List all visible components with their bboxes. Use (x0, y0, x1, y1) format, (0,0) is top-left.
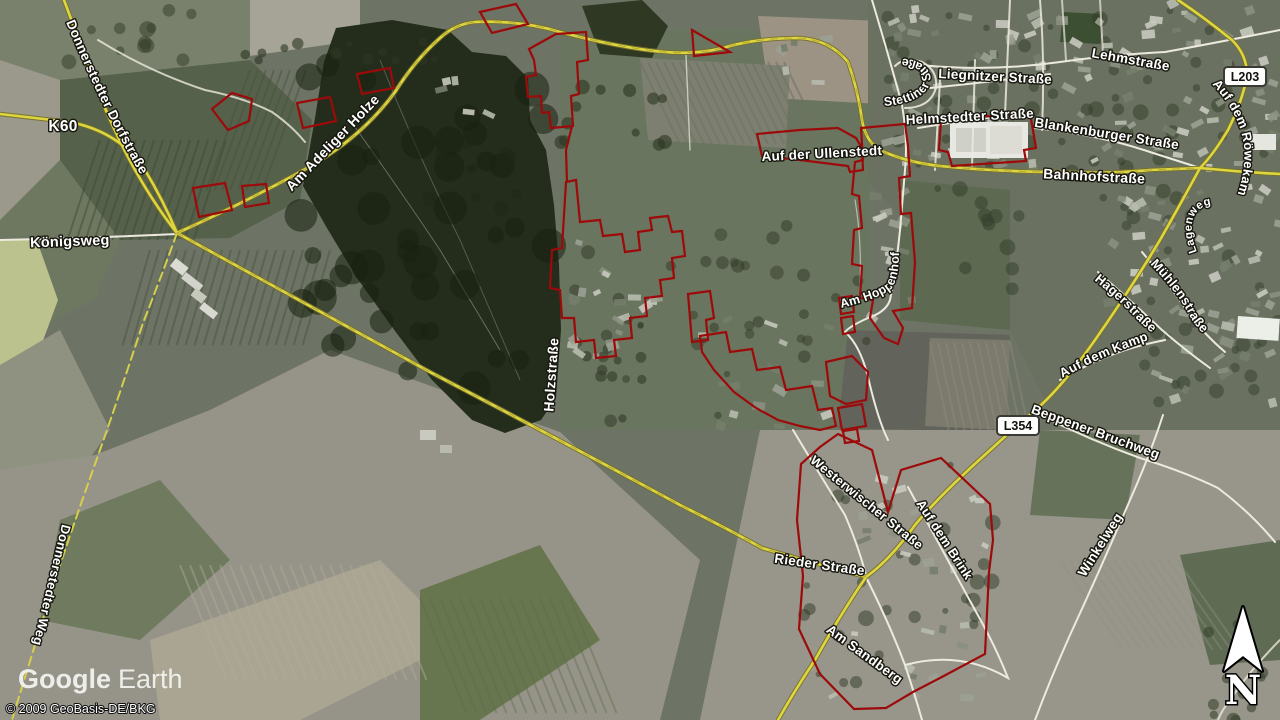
tree-blob (505, 218, 525, 238)
tree-blob (983, 25, 989, 31)
badge-label: L354 (1004, 419, 1033, 433)
building (893, 32, 902, 42)
tree-blob (797, 269, 810, 282)
building (939, 625, 947, 634)
tree-blob (488, 350, 506, 368)
tree-blob (614, 357, 622, 365)
farm-building (420, 430, 436, 440)
tree-blob (803, 582, 810, 589)
tree-blob (596, 85, 606, 95)
tree-blob (1112, 103, 1124, 115)
tree-blob (512, 189, 522, 199)
factory-building (990, 126, 1022, 154)
farm-building (440, 445, 452, 453)
tree-blob (503, 150, 517, 164)
tree-blob (321, 333, 344, 356)
tree-blob (740, 261, 750, 271)
tree-blob (604, 414, 617, 427)
tree-blob (730, 258, 739, 267)
tree-blob (1164, 246, 1172, 254)
tree-blob (362, 148, 379, 165)
tree-blob (799, 309, 809, 319)
tree-blob (240, 50, 250, 60)
tree-blob (637, 323, 643, 329)
tree-blob (700, 256, 711, 267)
tree-blob (1203, 627, 1214, 638)
tree-blob (622, 375, 630, 383)
tree-blob (1127, 210, 1141, 224)
tree-blob (839, 678, 848, 687)
tree-blob (186, 9, 196, 19)
map-canvas[interactable]: K60 Donnerstedter Dorfstraße Königsweg A… (0, 0, 1280, 720)
tree-blob (1166, 104, 1179, 117)
tree-blob (1143, 75, 1152, 84)
building (1157, 200, 1165, 205)
building (863, 528, 872, 533)
building (869, 192, 882, 201)
tree-blob (280, 44, 288, 52)
tree-blob (581, 245, 595, 259)
tree-blob (1208, 699, 1219, 710)
tree-blob (744, 321, 754, 331)
building (996, 20, 1010, 28)
copyright-text: © 2009 GeoBasis-DE/BKG (6, 702, 156, 716)
tree-blob (607, 371, 617, 381)
tree-blob (798, 350, 810, 362)
tree-blob (1139, 359, 1150, 370)
tree-blob (1006, 262, 1019, 275)
building (900, 72, 909, 81)
building (858, 511, 868, 520)
tree-blob (460, 138, 471, 149)
tree-blob (257, 48, 266, 57)
tree-blob (469, 164, 477, 172)
road-badge-l203: L203 (1224, 67, 1266, 86)
building (1141, 29, 1155, 39)
tree-blob (658, 94, 667, 103)
tree-blob (62, 54, 77, 69)
tree-blob (716, 256, 729, 269)
tree-blob (941, 134, 950, 143)
tree-blob (285, 199, 318, 232)
tree-blob (346, 41, 352, 47)
tree-blob (146, 23, 156, 33)
map-viewport[interactable]: K60 Donnerstedter Dorfstraße Königsweg A… (0, 0, 1280, 720)
tree-blob (984, 573, 1000, 589)
field-patch (925, 338, 1010, 430)
factory-building (956, 128, 986, 152)
tree-blob (1047, 24, 1053, 30)
large-roof (1236, 316, 1279, 341)
tree-blob (1018, 39, 1031, 52)
tree-blob (1193, 84, 1201, 92)
tree-blob (494, 201, 509, 216)
tree-blob (781, 220, 793, 232)
tree-blob (1209, 383, 1224, 398)
tree-blob (934, 185, 941, 192)
building (909, 13, 917, 23)
tree-blob (709, 323, 719, 333)
tree-blob (357, 192, 390, 225)
tree-blob (362, 54, 373, 65)
tree-blob (884, 75, 893, 84)
tree-blob (1006, 282, 1019, 295)
tree-blob (933, 97, 942, 106)
tree-blob (1235, 337, 1250, 352)
building (1005, 34, 1014, 44)
tree-blob (858, 610, 874, 626)
tree-blob (952, 181, 968, 197)
building (960, 622, 970, 629)
building (578, 287, 587, 297)
tree-blob (1013, 210, 1024, 221)
tree-blob (753, 316, 764, 327)
tree-blob (488, 227, 505, 244)
tree-blob (360, 283, 380, 303)
road-badge-l354: L354 (997, 416, 1039, 435)
tree-blob (714, 228, 727, 241)
tree-blob (978, 558, 990, 570)
building (774, 423, 785, 429)
tree-blob (391, 56, 399, 64)
tree-blob (379, 47, 388, 56)
tree-blob (714, 412, 721, 419)
tree-blob (636, 352, 647, 363)
tree-blob (431, 56, 438, 63)
building (1028, 159, 1036, 168)
tree-blob (637, 375, 646, 384)
tree-blob (1244, 370, 1257, 383)
tree-blob (623, 84, 636, 97)
tree-blob (532, 229, 566, 263)
tree-blob (945, 12, 952, 19)
tree-blob (724, 371, 730, 377)
building (1186, 41, 1194, 47)
tree-blob (978, 208, 991, 221)
building (628, 294, 641, 300)
building (1200, 245, 1209, 253)
tree-blob (140, 38, 154, 52)
tree-blob (370, 310, 394, 334)
street-label-koenigsweg: Königsweg (30, 233, 110, 252)
tree-blob (1133, 104, 1149, 120)
building (812, 80, 825, 85)
tree-blob (909, 611, 921, 623)
tree-blob (471, 193, 481, 203)
tree-blob (975, 196, 988, 209)
building (1149, 277, 1158, 286)
tree-blob (658, 135, 672, 149)
tree-blob (163, 4, 176, 17)
tree-blob (618, 414, 626, 422)
tree-blob (770, 266, 784, 280)
tree-blob (666, 261, 676, 271)
tree-blob (1190, 57, 1201, 68)
building (1056, 16, 1068, 25)
tree-blob (335, 251, 369, 285)
tree-blob (999, 239, 1015, 255)
building (1132, 232, 1145, 240)
google-earth-logo: GoogleEarth (18, 664, 183, 694)
building (451, 76, 458, 86)
tree-blob (850, 676, 862, 688)
compass-n-label: N (1225, 667, 1262, 714)
badge-label: L203 (1231, 70, 1260, 84)
tree-blob (418, 37, 427, 46)
tree-blob (1194, 370, 1206, 382)
tree-blob (1058, 138, 1065, 145)
tree-blob (114, 23, 126, 35)
tree-blob (647, 92, 659, 104)
tree-blob (450, 270, 480, 300)
building (930, 567, 939, 575)
tree-blob (959, 262, 971, 274)
tree-blob (1210, 711, 1218, 719)
tree-blob (1156, 184, 1171, 199)
building (967, 95, 976, 103)
tree-blob (1248, 384, 1259, 395)
building (960, 694, 974, 702)
building (614, 299, 626, 306)
building (1115, 120, 1127, 125)
building (911, 5, 920, 14)
tree-blob (1146, 296, 1155, 305)
tree-blob (292, 38, 303, 49)
tree-blob (1088, 101, 1104, 117)
field-patch (900, 180, 1010, 330)
tree-blob (862, 337, 870, 345)
tree-blob (423, 191, 438, 206)
tree-blob (766, 231, 779, 244)
tree-blob (410, 322, 429, 341)
tree-blob (1099, 194, 1107, 202)
tree-blob (632, 129, 640, 137)
tree-blob (434, 191, 467, 224)
tree-blob (595, 370, 607, 382)
tree-blob (942, 608, 948, 614)
tree-blob (1048, 89, 1059, 100)
tree-blob (332, 50, 341, 59)
tree-blob (509, 350, 529, 370)
tree-blob (797, 334, 806, 343)
building (782, 66, 790, 75)
tree-blob (176, 53, 189, 66)
tree-blob (397, 229, 419, 251)
tree-blob (1112, 94, 1120, 102)
tree-blob (304, 247, 321, 264)
tree-blob (434, 147, 448, 161)
tree-blob (528, 104, 558, 134)
tree-blob (1149, 346, 1160, 357)
tree-blob (401, 126, 435, 160)
street-label-k60: K60 (48, 118, 77, 135)
building (1251, 301, 1261, 307)
tree-blob (87, 25, 96, 34)
tree-blob (1153, 396, 1164, 407)
